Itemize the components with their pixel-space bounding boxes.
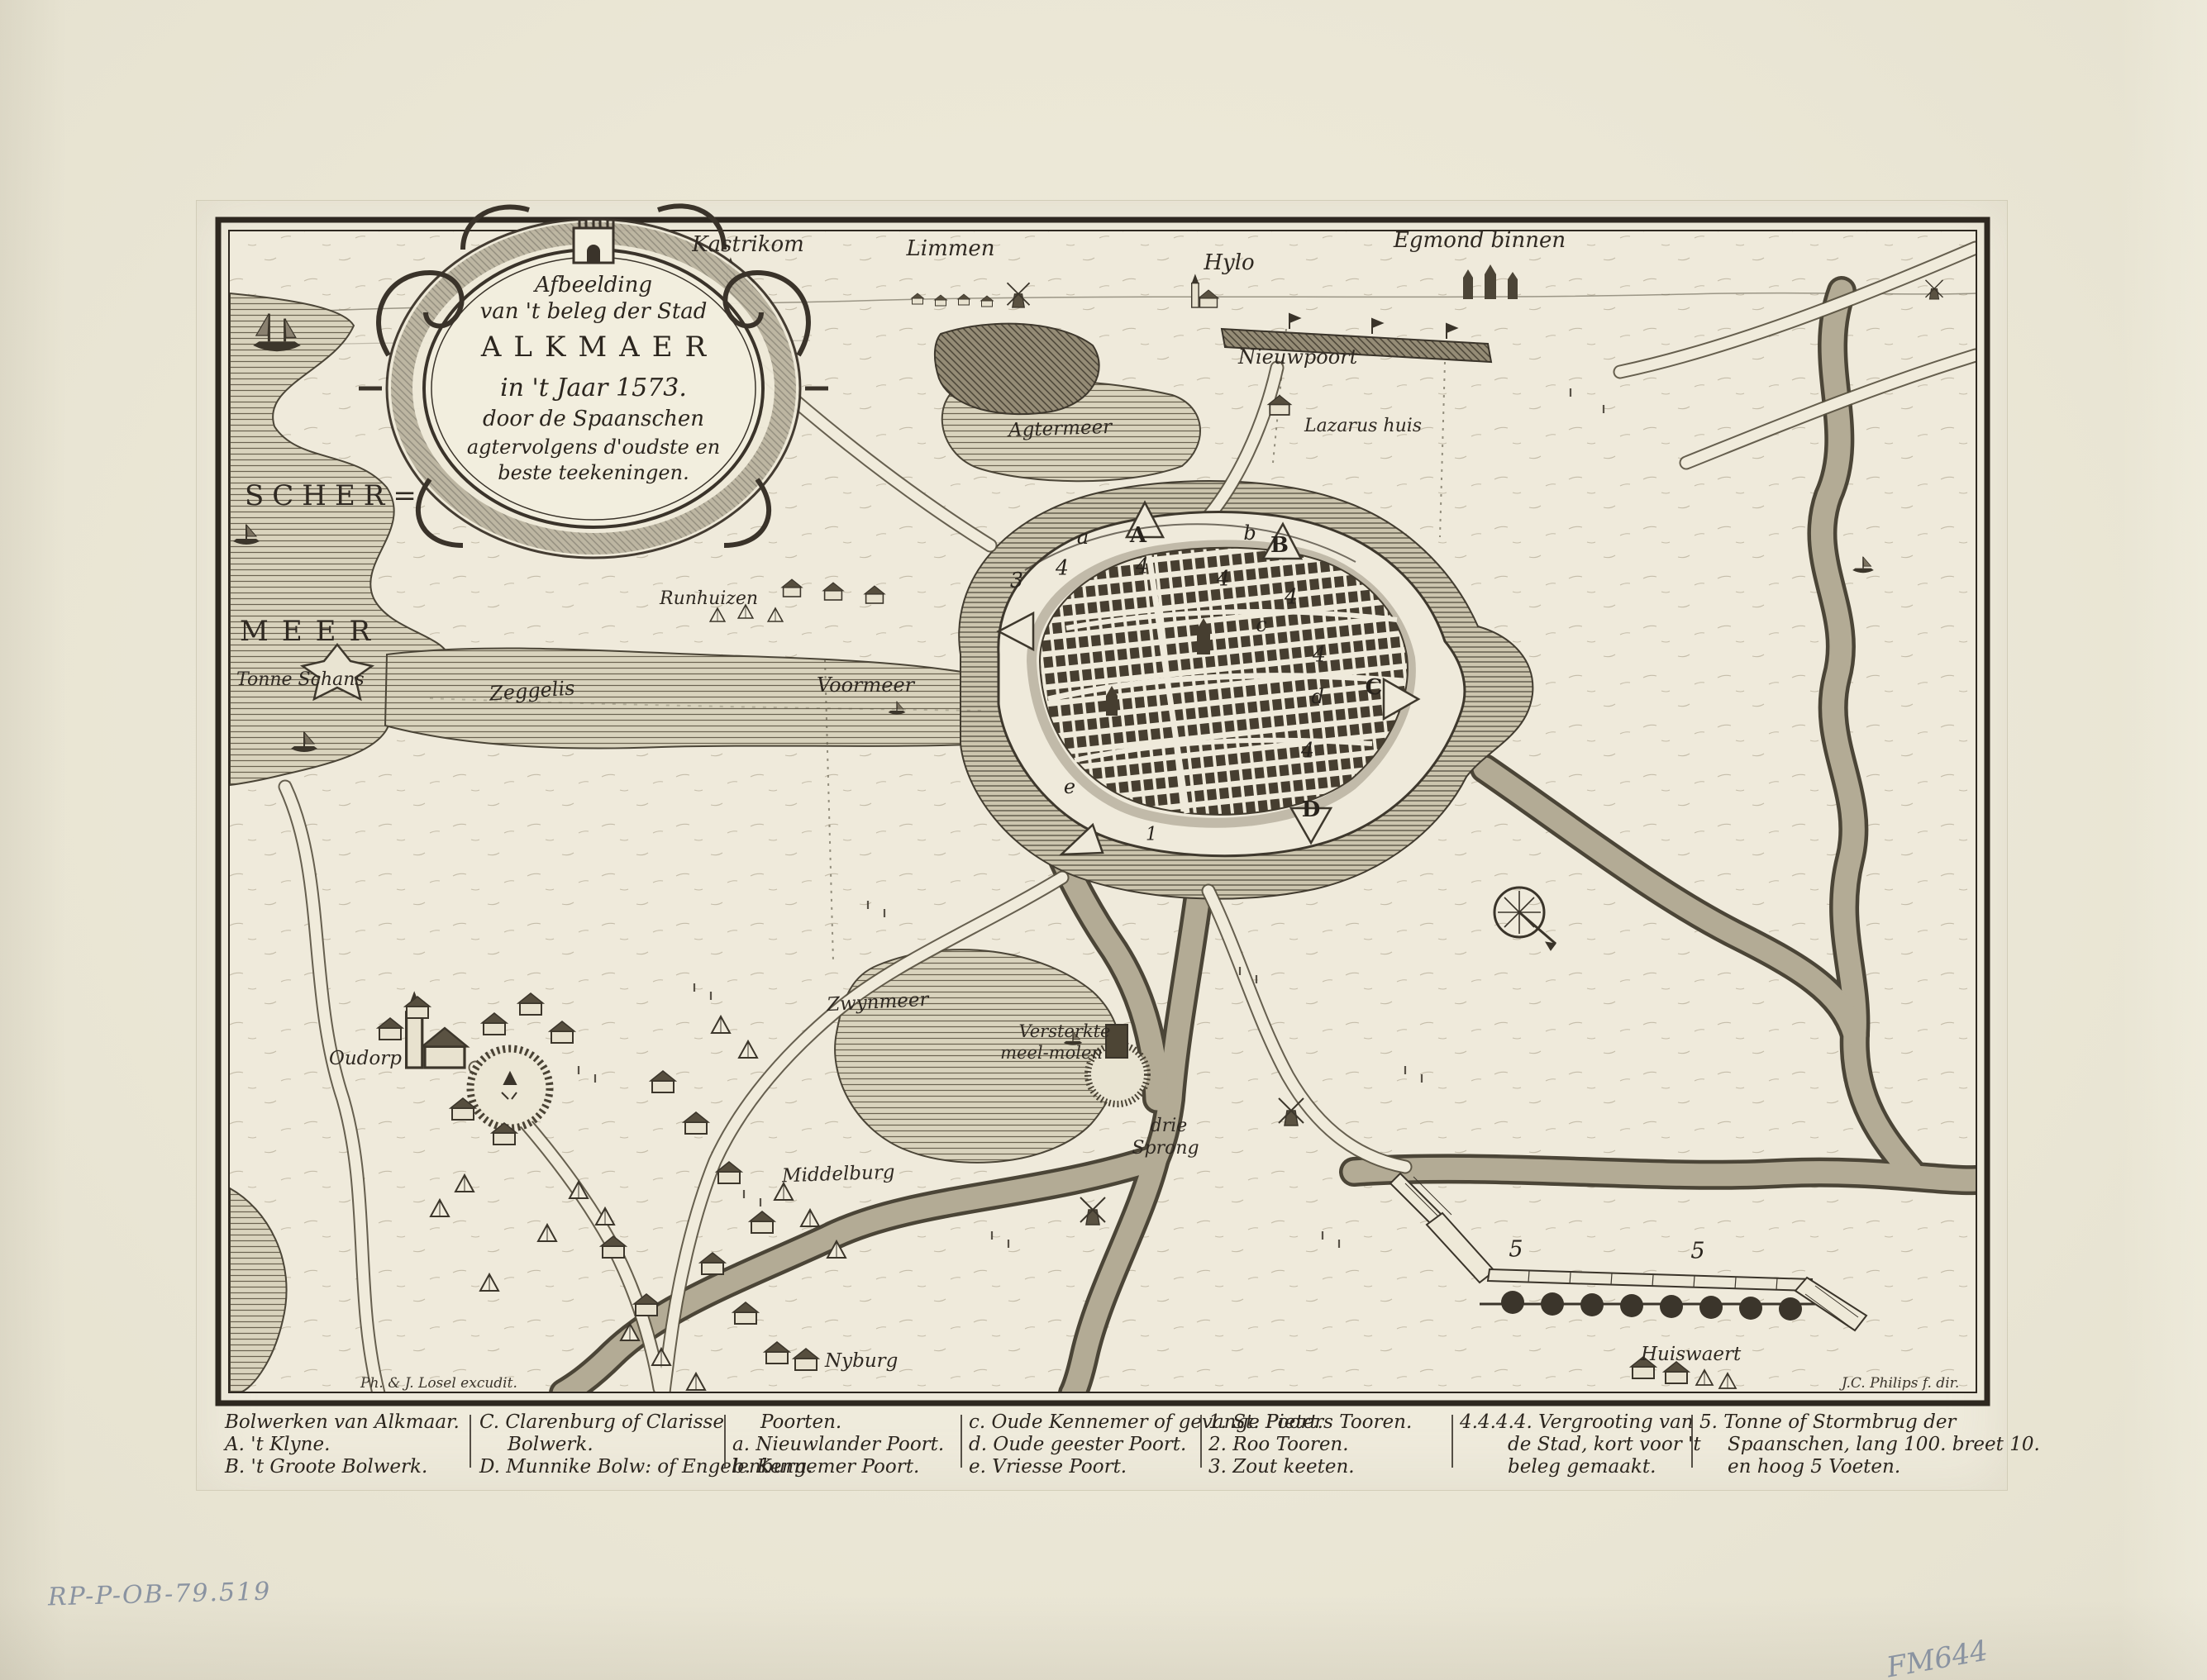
label-hylo: Hylo <box>1204 250 1254 275</box>
legend-line: b. Kennemer Poort. <box>732 1456 944 1478</box>
cartouche-title-alkmaer: ALKMAER <box>469 331 718 364</box>
cartouche-title-line: van 't beleg der Stad <box>480 299 708 324</box>
barrel <box>1501 1291 1524 1314</box>
barrel <box>1739 1297 1762 1320</box>
barrel <box>1620 1294 1643 1317</box>
marker-5: 5 <box>1690 1239 1704 1264</box>
label-versterkte: Versterkte <box>1019 1021 1111 1041</box>
tower-battlements <box>574 220 613 228</box>
marker-4: 4 <box>1217 567 1230 591</box>
marker-b: b <box>1243 521 1256 545</box>
label-drie: drie <box>1151 1116 1188 1136</box>
marker-d: d <box>1311 685 1323 708</box>
label-agtermeer: Agtermeer <box>1008 416 1113 441</box>
label-sprong: Sprong <box>1132 1138 1199 1159</box>
legend-line: beleg gemaakt. <box>1460 1456 1701 1478</box>
legend-line: en hoog 5 Voeten. <box>1699 1456 2040 1478</box>
legend-line: 1. St. Pieters Tooren. <box>1208 1411 1412 1434</box>
tower-gate <box>587 245 600 263</box>
legend-column-6: 4.4.4.4. Vergrooting van de Stad, kort v… <box>1460 1411 1701 1478</box>
cartouche-crest-tower <box>574 220 613 263</box>
legend-line: 3. Zout keeten. <box>1208 1456 1412 1478</box>
legend-divider <box>724 1415 726 1468</box>
label-lazarus-huis: Lazarus huis <box>1304 416 1422 436</box>
barrel <box>1699 1296 1723 1319</box>
marker-A: A <box>1130 523 1146 548</box>
legend-line: Poorten. <box>732 1411 944 1434</box>
legend-line: 5. Tonne of Stormbrug der <box>1699 1411 2040 1434</box>
cartouche-title-line: beste teekeningen. <box>498 461 689 484</box>
marker-B: B <box>1270 533 1289 558</box>
label-meer: MEER <box>240 615 384 648</box>
legend-line: de Stad, kort voor 't <box>1460 1434 1701 1456</box>
marker-4: 4 <box>1136 554 1149 578</box>
cartouche-title-line: in 't Jaar 1573. <box>500 374 687 402</box>
legend-line: Spaanschen, lang 100. breet 10. <box>1699 1434 2040 1456</box>
label-voormeer: Voormeer <box>817 673 914 697</box>
label-kastrikom: Kastrikom <box>692 232 804 257</box>
cartouche-title-line: Afbeelding <box>535 273 652 297</box>
marker-5: 5 <box>1509 1237 1523 1263</box>
barrel <box>1580 1293 1604 1316</box>
legend-column-1: Bolwerken van Alkmaar. A. 't Klyne. B. '… <box>225 1411 460 1478</box>
paper-sheet: Afbeelding van 't beleg der Stad ALKMAER… <box>0 0 2207 1680</box>
label-runhuizen: Runhuizen <box>660 588 758 609</box>
marker-4: 4 <box>1301 739 1314 763</box>
marker-4: 4 <box>1285 585 1298 609</box>
south-river-fill <box>1354 1168 1976 1180</box>
label-huiswaert: Huiswaert <box>1641 1344 1741 1365</box>
legend-line: a. Nieuwlander Poort. <box>732 1434 944 1456</box>
legend-line: A. 't Klyne. <box>225 1434 460 1456</box>
siege-earthwork-ring <box>470 1049 550 1128</box>
legend-line: 2. Roo Tooren. <box>1208 1434 1412 1456</box>
label-egmond-binnen: Egmond binnen <box>1394 228 1566 253</box>
marker-D: D <box>1302 797 1321 822</box>
legend-column-5: 1. St. Pieters Tooren. 2. Roo Tooren. 3.… <box>1208 1411 1412 1478</box>
marker-3: 3 <box>1010 569 1023 593</box>
legend-column-7: 5. Tonne of Stormbrug der Spaanschen, la… <box>1699 1411 2040 1478</box>
label-nieuwpoort: Nieuwpoort <box>1238 345 1357 369</box>
label-nyburg: Nyburg <box>825 1350 898 1372</box>
legend-line: Bolwerken van Alkmaar. <box>225 1411 460 1434</box>
marker-e: e <box>1064 775 1075 798</box>
label-oudorp: Oudorp <box>329 1048 402 1069</box>
barrel <box>1779 1297 1802 1321</box>
legend-column-3: Poorten. a. Nieuwlander Poort. b. Kennem… <box>732 1411 944 1478</box>
label-scher: SCHER= <box>245 479 425 512</box>
marker-a: a <box>1077 526 1089 549</box>
legend-divider <box>1200 1415 1202 1468</box>
marker-1: 1 <box>1146 825 1157 845</box>
legend-divider <box>960 1415 962 1468</box>
engraver-signature: J.C. Philips f. dir. <box>1842 1375 1959 1392</box>
legend-divider <box>1451 1415 1453 1468</box>
legend-divider <box>1691 1415 1693 1468</box>
cartouche-title-line: agtervolgens d'oudste en <box>467 435 720 459</box>
marker-c: c <box>1256 613 1266 636</box>
barrel <box>1660 1295 1683 1318</box>
wooded-island <box>935 324 1099 415</box>
catalog-number-pencil: RP-P-OB-79.519 <box>48 1577 272 1611</box>
label-limmen: Limmen <box>906 236 994 261</box>
label-middelburg: Middelburg <box>782 1162 895 1187</box>
label-tonne-schans: Tonne Schans <box>236 669 365 690</box>
label-meel-molen: meel-molen <box>1000 1043 1103 1063</box>
legend-line: 4.4.4.4. Vergrooting van <box>1460 1411 1701 1434</box>
publisher-signature: Ph. & J. Losel excudit. <box>360 1375 517 1392</box>
marker-C: C <box>1366 675 1383 700</box>
marker-4: 4 <box>1313 643 1326 667</box>
legend-divider <box>470 1415 471 1468</box>
cartouche-title-line: door de Spaanschen <box>483 407 704 431</box>
marker-4: 4 <box>1056 556 1069 580</box>
legend-line: B. 't Groote Bolwerk. <box>225 1456 460 1478</box>
barrel <box>1541 1292 1564 1316</box>
